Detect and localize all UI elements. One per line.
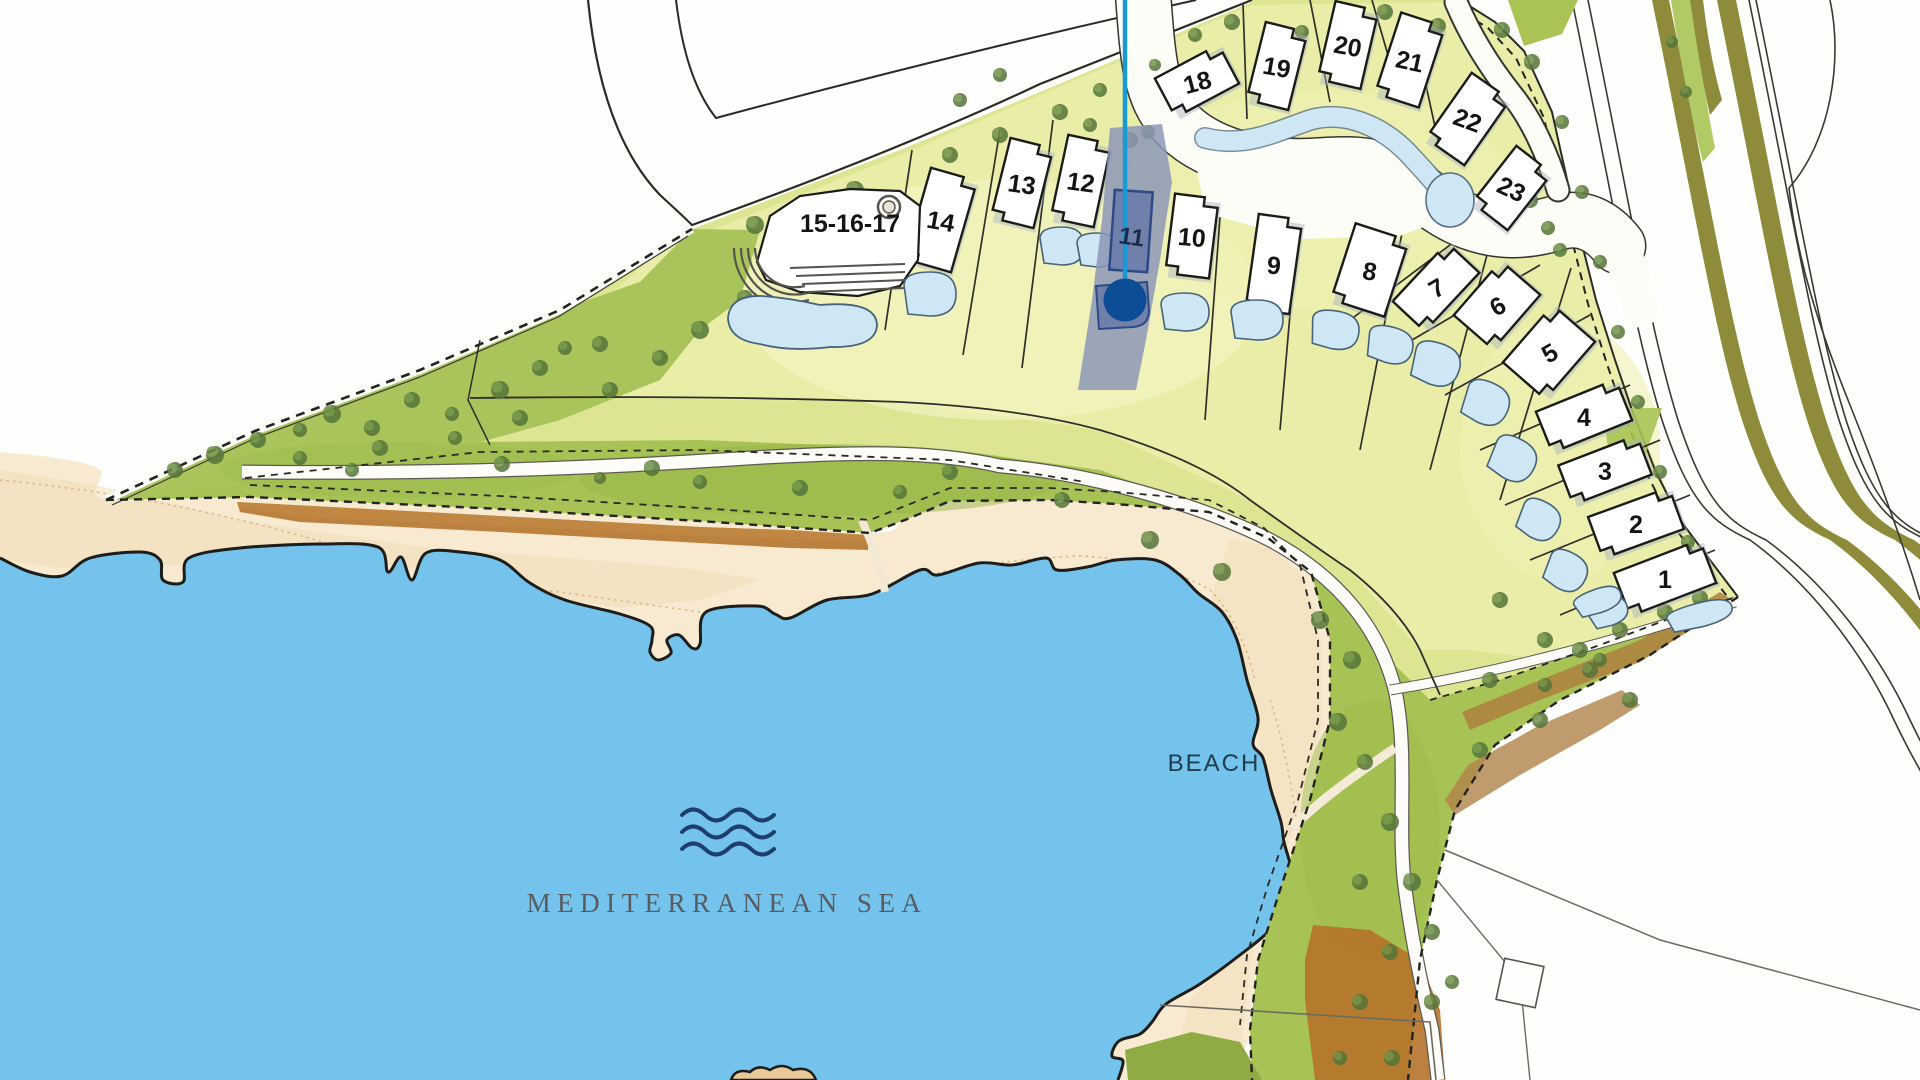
svg-text:20: 20 [1332,31,1364,63]
svg-text:4: 4 [1577,404,1591,432]
svg-text:2: 2 [1629,511,1643,539]
svg-text:1: 1 [1658,566,1672,594]
svg-text:11: 11 [1117,222,1146,252]
svg-text:15-16-17: 15-16-17 [800,210,900,238]
svg-text:MEDITERRANEAN SEA: MEDITERRANEAN SEA [527,888,928,918]
svg-text:3: 3 [1598,458,1612,486]
svg-text:14: 14 [925,206,957,238]
svg-text:10: 10 [1177,223,1207,253]
svg-text:13: 13 [1006,169,1037,201]
svg-text:12: 12 [1065,167,1096,199]
svg-text:9: 9 [1266,251,1282,280]
svg-text:19: 19 [1261,52,1293,84]
svg-text:21: 21 [1393,45,1426,78]
svg-text:BEACH: BEACH [1168,750,1261,777]
